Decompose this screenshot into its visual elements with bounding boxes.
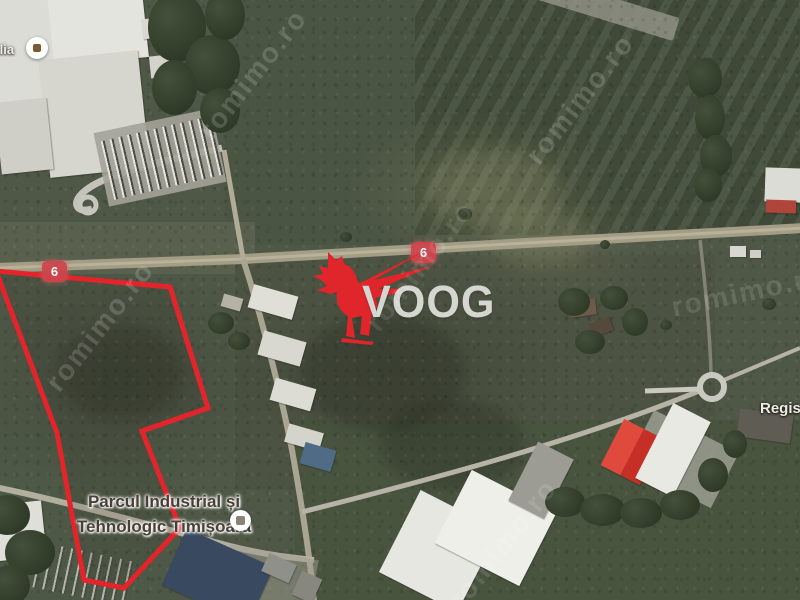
tree-cluster (575, 330, 605, 354)
driveway-road (224, 150, 243, 258)
building (750, 250, 761, 258)
tree-cluster (600, 286, 628, 310)
tree-line (660, 490, 700, 520)
red-roof-building (766, 199, 796, 213)
tree-cluster (694, 168, 722, 202)
tree-cluster (695, 95, 725, 140)
roundabout (700, 375, 724, 399)
tree-line (580, 494, 625, 526)
poi-marker-icon[interactable] (26, 37, 48, 59)
tree-cluster (688, 58, 722, 98)
poi-marker-icon[interactable] (230, 510, 251, 531)
tree-line (620, 498, 662, 528)
cut-off-place-label: ilia (0, 42, 14, 57)
poi-marker-glyph (236, 516, 245, 525)
diagonal-road-continuation (724, 348, 800, 380)
tree-cluster (228, 332, 250, 350)
tree-cluster (152, 60, 197, 115)
building (0, 97, 54, 174)
mini-roundabout (80, 197, 96, 213)
bush (600, 240, 610, 249)
tree-line (723, 430, 747, 458)
cut-off-place-label: Regis (760, 400, 800, 417)
tree-cluster (558, 288, 590, 316)
building (764, 167, 800, 202)
bush (660, 320, 672, 330)
tree-cluster (208, 312, 234, 334)
roundabout-approach (645, 389, 700, 391)
building (730, 246, 746, 257)
poi-marker-glyph (33, 44, 41, 52)
tree-line (698, 458, 728, 492)
route-badge: 6 (42, 261, 67, 282)
satellite-map-canvas[interactable]: 6 6 Parcul Industrial și Tehnologic Timi… (0, 0, 800, 600)
tree-cluster (622, 308, 648, 336)
